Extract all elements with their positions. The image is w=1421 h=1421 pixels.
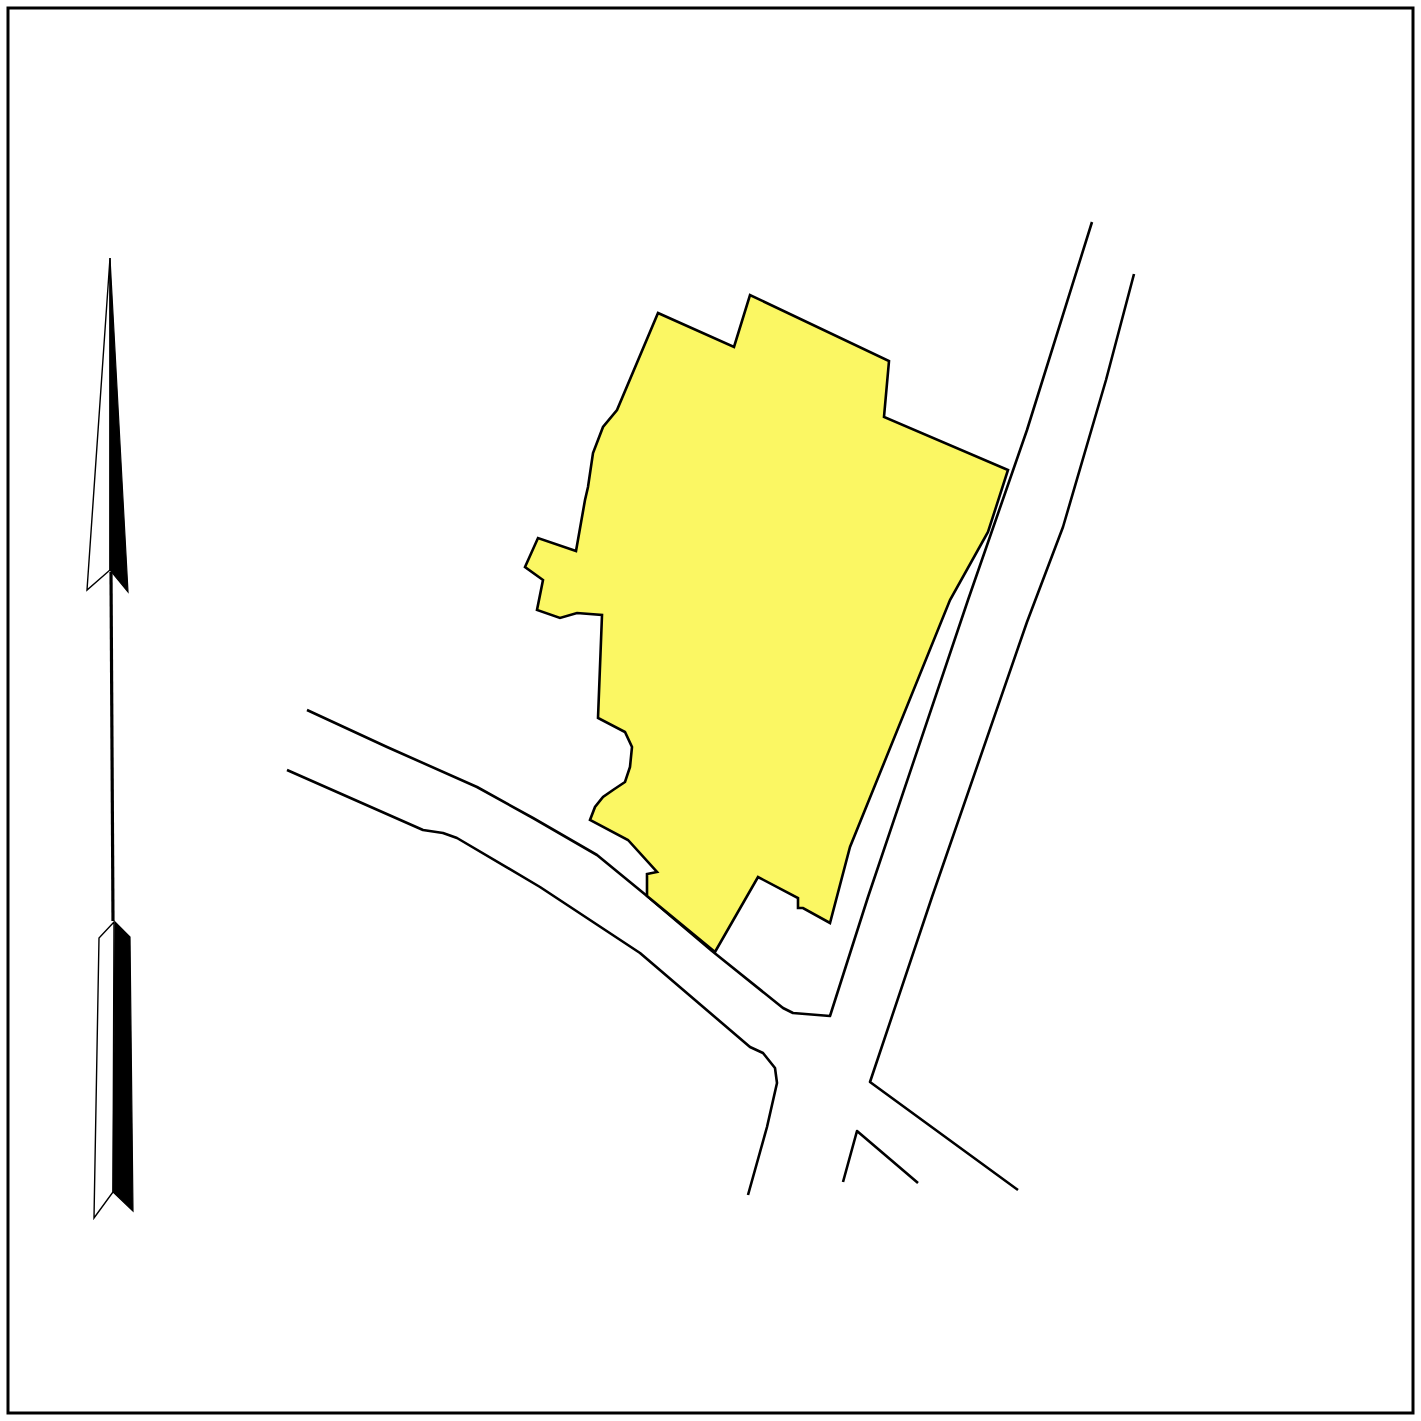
north-arrow-icon xyxy=(87,258,133,1218)
parcel-polygon xyxy=(525,295,1008,952)
map-page xyxy=(0,0,1421,1421)
road-northeast-right-edge xyxy=(870,274,1134,1190)
north-arrow-shaft xyxy=(111,572,113,921)
north-arrow-tail-white-half xyxy=(94,922,114,1218)
north-arrow-head-black-half xyxy=(110,258,128,592)
map-canvas xyxy=(0,0,1421,1421)
road-fork-wedge xyxy=(843,1131,918,1183)
north-arrow-head-white-half xyxy=(87,258,110,590)
north-arrow-tail-black-half xyxy=(113,922,133,1211)
